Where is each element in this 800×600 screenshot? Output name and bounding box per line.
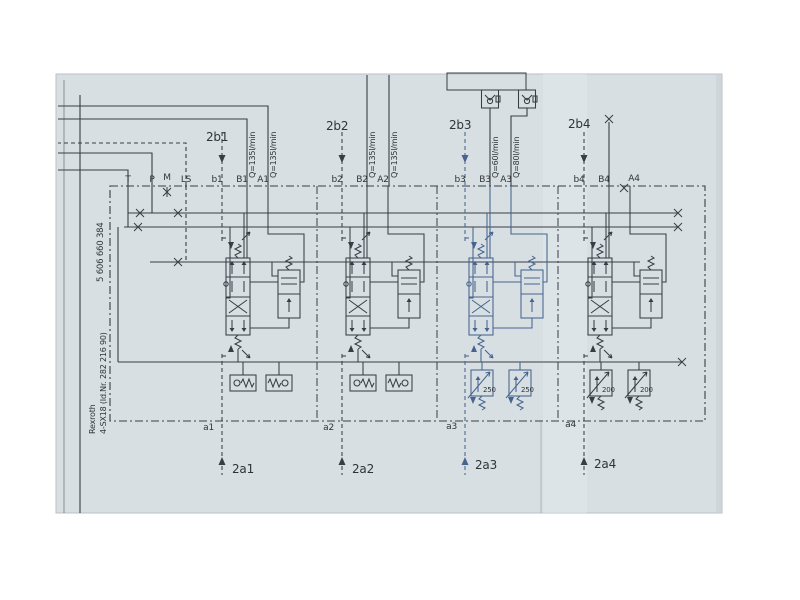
relief-b-setting: 250	[483, 386, 496, 394]
model-label: 4-SX18 (Id.Nr. 282 216 90)	[99, 332, 108, 434]
pilot-bottom-label: 2a3	[475, 458, 497, 472]
port-a-label: A3	[500, 175, 511, 185]
brand-label: Rexroth	[88, 404, 97, 434]
port-a-label: A4	[628, 174, 640, 184]
pilot-top-label: 2b1	[206, 130, 228, 144]
port-a-pilot-label: a4	[565, 420, 576, 430]
relief-a-setting: 250	[521, 386, 534, 394]
port-a-label: A1	[257, 175, 268, 185]
pilot-bottom-label: 2a2	[352, 462, 374, 476]
flow-a-label: Q=135l/min	[269, 132, 278, 178]
port-p-label: P	[149, 175, 155, 185]
port-ls-label: LS	[181, 175, 192, 185]
pilot-bottom-label: 2a1	[232, 462, 254, 476]
flow-b-label: Q=60l/min	[491, 136, 500, 178]
pilot-top-label: 2b3	[449, 118, 471, 132]
port-a-pilot-label: a1	[203, 423, 214, 433]
port-b-label: B2	[356, 175, 368, 185]
pilot-bottom-label: 2a4	[594, 457, 616, 471]
pilot-top-label: 2b2	[326, 119, 348, 133]
port-a-pilot-label: a2	[323, 423, 334, 433]
flow-b-label: Q=135l/min	[248, 132, 257, 178]
port-b-pilot-label: b3	[454, 175, 465, 185]
port-b-label: B4	[598, 175, 610, 185]
relief-b-setting: 200	[602, 386, 615, 394]
port-a-pilot-label: a3	[446, 422, 457, 432]
part-number: 5 606 660 384	[96, 222, 106, 282]
port-a-label: A2	[377, 175, 388, 185]
hydraulic-schematic: 5 606 660 384 Rexroth 4-SX18 (Id.Nr. 282…	[0, 0, 800, 600]
port-t-label: T	[124, 175, 131, 185]
port-b-pilot-label: b1	[211, 175, 222, 185]
schematic-photo: 5 606 660 384 Rexroth 4-SX18 (Id.Nr. 282…	[0, 0, 800, 600]
flow-a-label: Q=80l/min	[512, 136, 521, 178]
port-m-label: M	[163, 173, 171, 183]
flow-a-label: Q=135l/min	[390, 132, 399, 178]
port-b-pilot-label: b2	[331, 175, 342, 185]
port-b-label: B1	[236, 175, 248, 185]
port-b-label: B3	[479, 175, 491, 185]
port-b-pilot-label: b4	[573, 175, 585, 185]
pilot-top-label: 2b4	[568, 117, 590, 131]
relief-a-setting: 200	[640, 386, 653, 394]
flow-b-label: Q=135l/min	[368, 132, 377, 178]
